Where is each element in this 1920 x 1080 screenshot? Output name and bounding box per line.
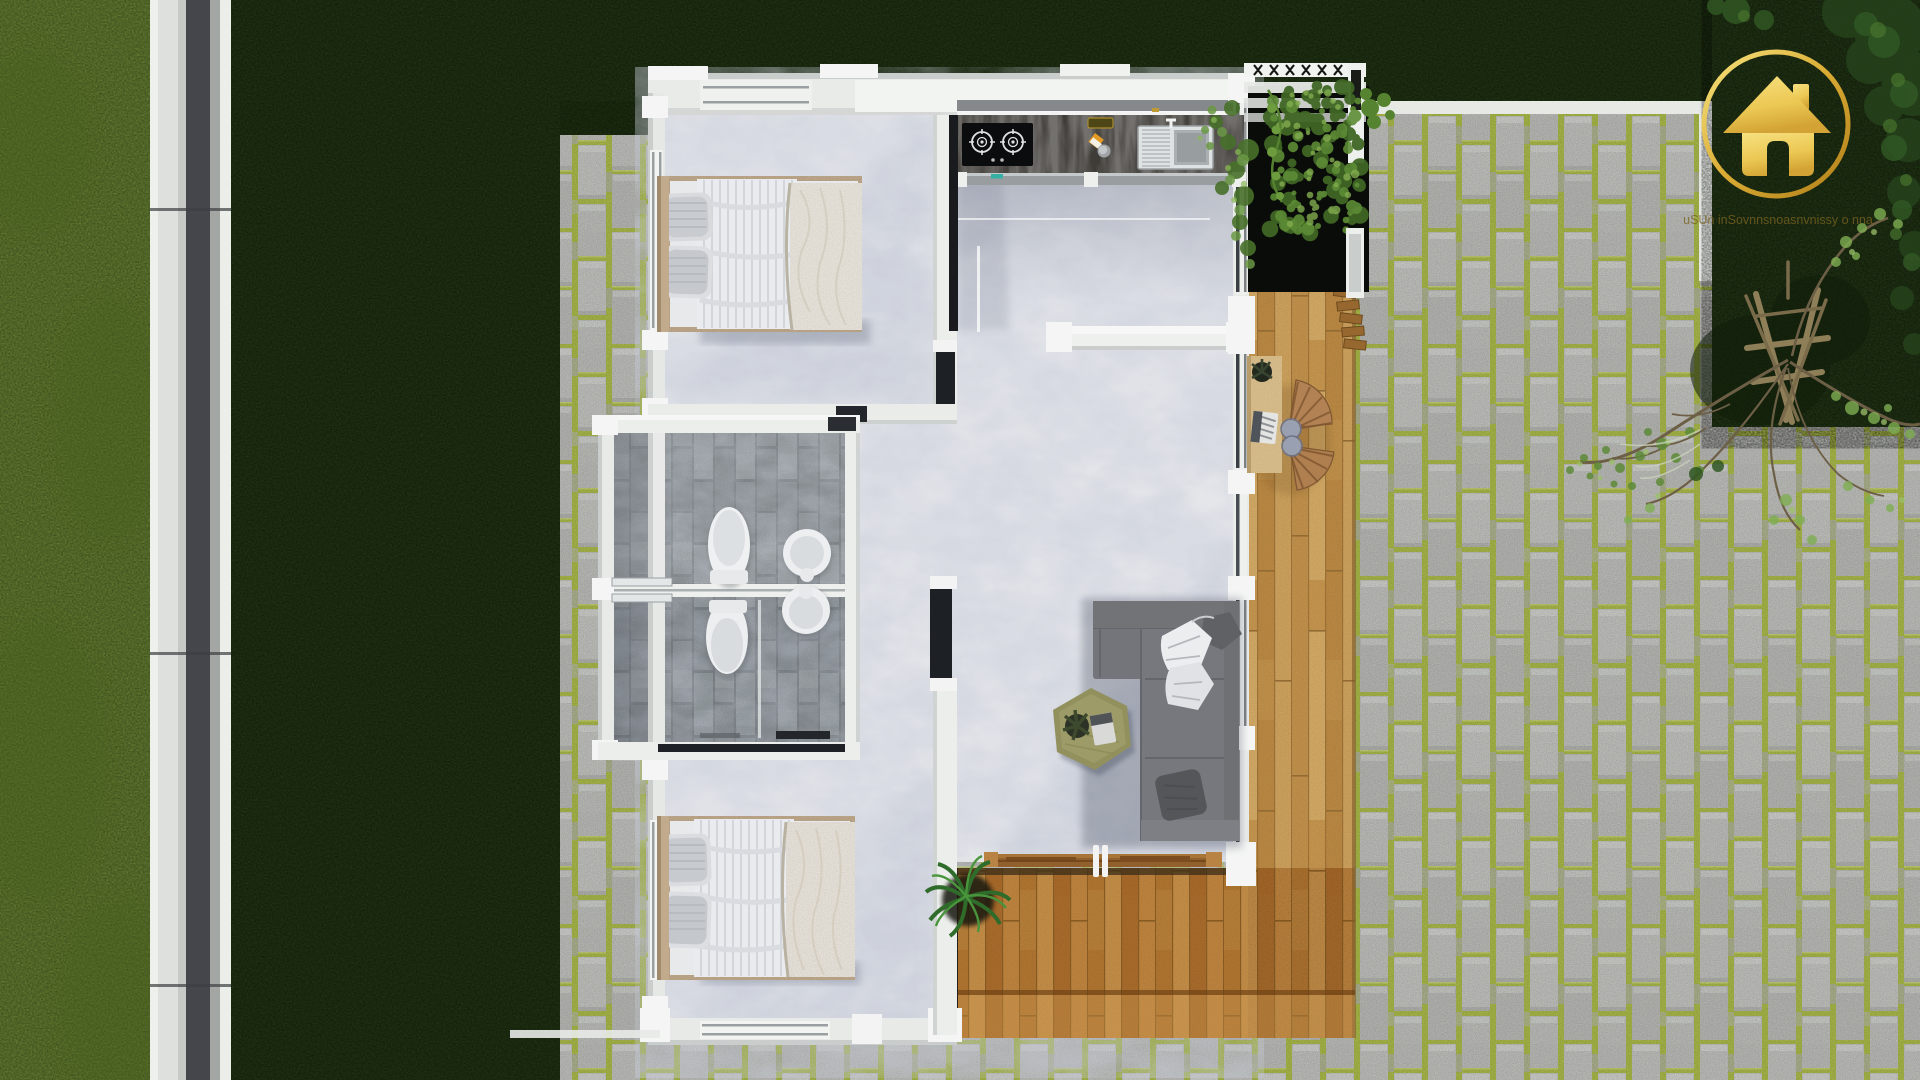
svg-text:uSUn inSovnnsnoasnvnissy o nna: uSUn inSovnnsnoasnvnissy o nna	[1683, 213, 1873, 227]
